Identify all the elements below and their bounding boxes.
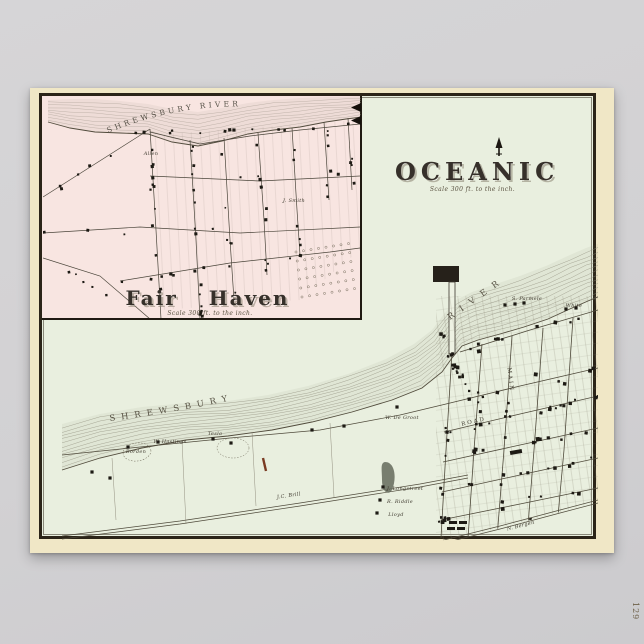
fair-haven-scale-note: Scale 300 ft. to the inch. bbox=[130, 310, 290, 317]
oceanic-village-graphics bbox=[436, 296, 600, 542]
map-label: R. Riddle bbox=[386, 499, 413, 505]
map-label: Allen bbox=[143, 151, 159, 157]
map-label: White bbox=[566, 303, 582, 309]
map-label: W. De Groot bbox=[385, 415, 419, 421]
oceanic-title: OCEANIC bbox=[395, 157, 550, 186]
map-label: J. Longstreet bbox=[386, 486, 424, 492]
poster-mockup: 129 SHREWSBURY RIVER SHREWSBU bbox=[0, 0, 644, 644]
map-label: Borden bbox=[125, 449, 146, 455]
oceanic-scale-note: Scale 300 ft. to the inch. bbox=[395, 186, 550, 193]
fair-haven-title: Fair Haven bbox=[120, 286, 295, 310]
map-label: J. Smith bbox=[282, 198, 305, 204]
map-drawing: SHREWSBURY RIVER SHREWSBURY RIVER W. Has… bbox=[0, 0, 644, 644]
map-label: W. Hastings bbox=[153, 439, 186, 445]
map-label: Tesla bbox=[208, 431, 223, 437]
map-label: S. Parmele bbox=[512, 296, 542, 302]
map-label: Lloyd bbox=[387, 512, 403, 518]
north-ornament-icon bbox=[496, 137, 503, 156]
map-label: J.C. Brill bbox=[276, 491, 302, 500]
